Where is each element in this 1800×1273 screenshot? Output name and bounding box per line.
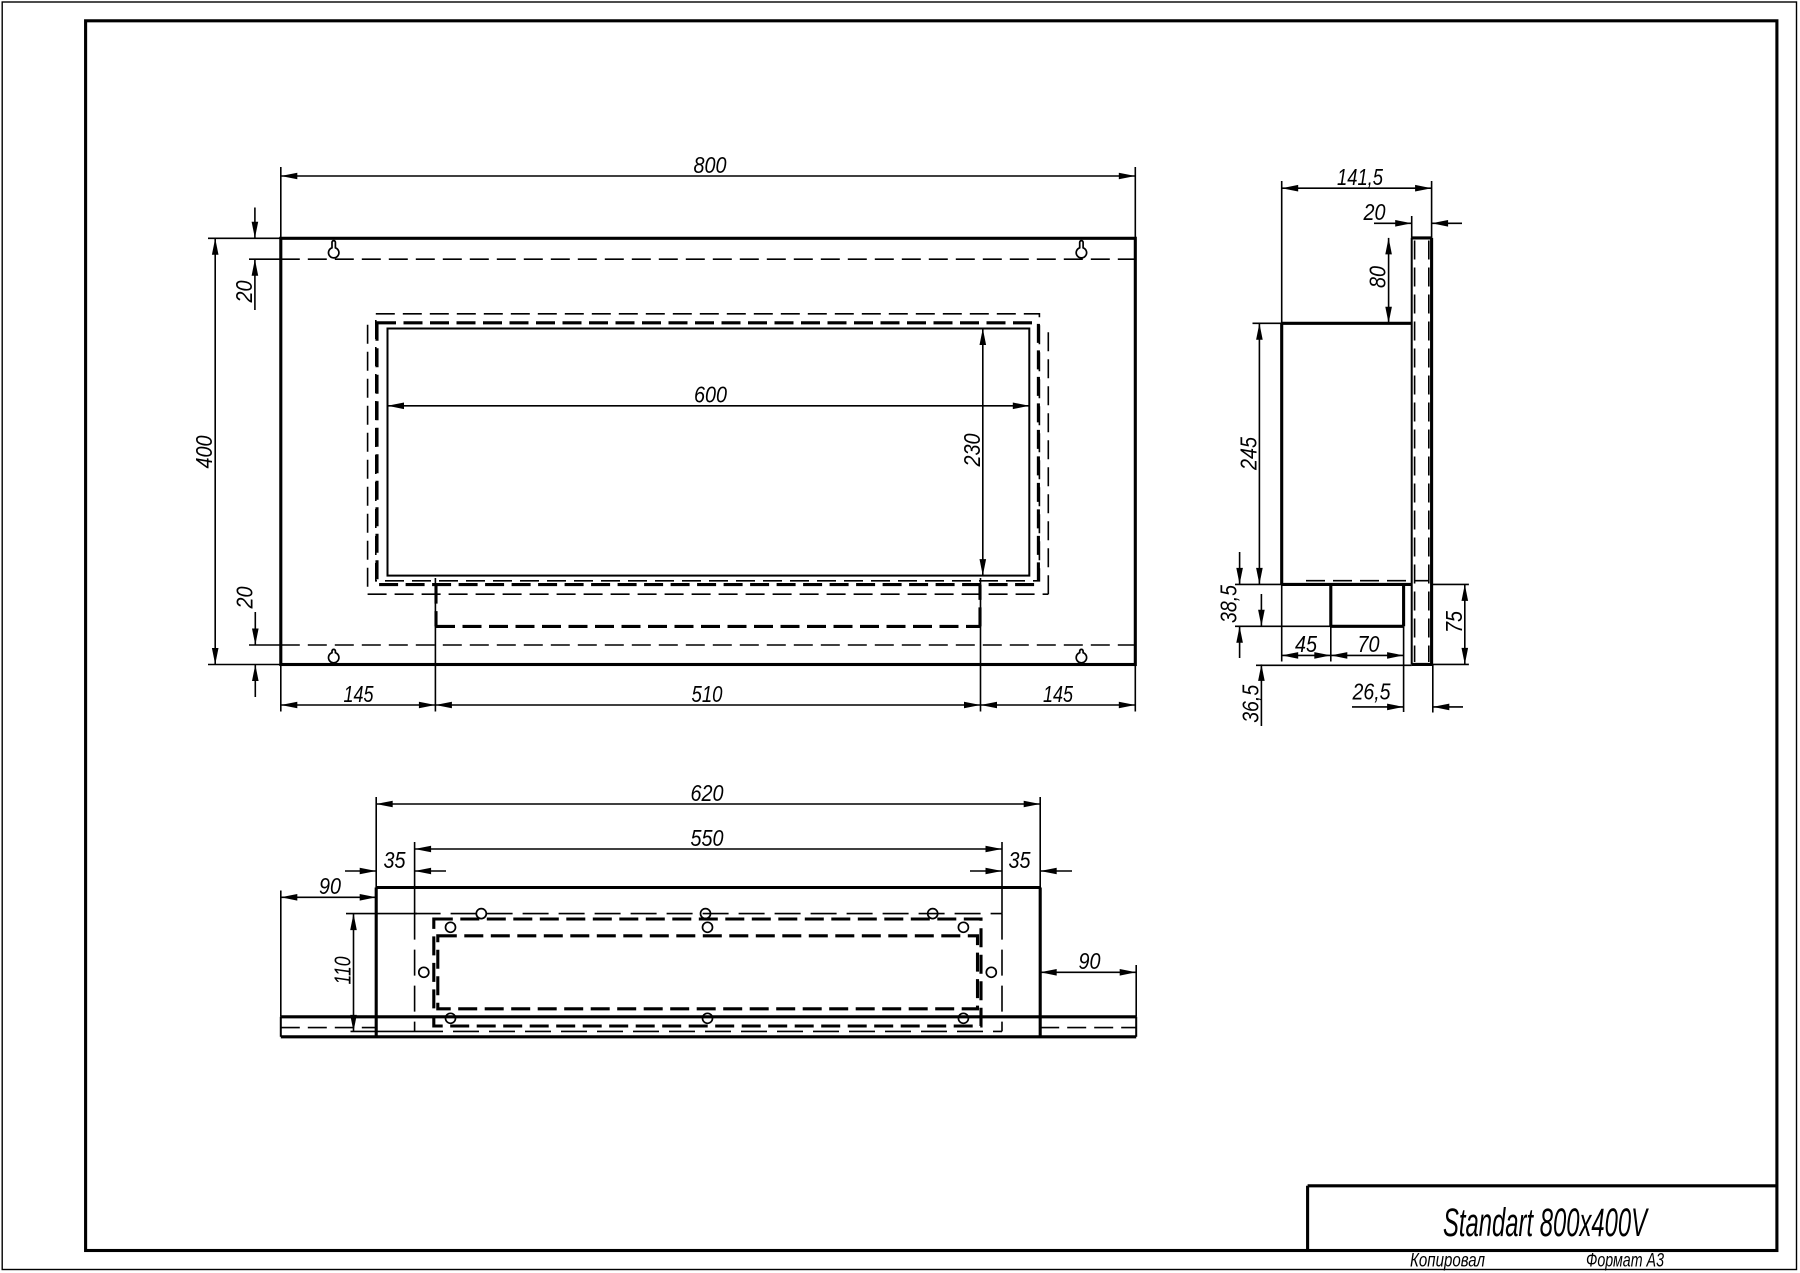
svg-text:Формат А3: Формат А3 bbox=[1586, 1250, 1664, 1272]
svg-text:141,5: 141,5 bbox=[1337, 164, 1383, 190]
svg-text:20: 20 bbox=[231, 280, 257, 303]
svg-text:45: 45 bbox=[1295, 631, 1317, 657]
svg-text:510: 510 bbox=[692, 681, 723, 707]
svg-text:600: 600 bbox=[694, 381, 727, 407]
svg-text:620: 620 bbox=[691, 780, 724, 806]
svg-text:80: 80 bbox=[1365, 266, 1391, 288]
svg-text:20: 20 bbox=[1363, 199, 1386, 225]
svg-text:230: 230 bbox=[959, 433, 985, 467]
svg-text:36,5: 36,5 bbox=[1237, 685, 1263, 723]
svg-text:20: 20 bbox=[231, 586, 257, 609]
svg-text:38,5: 38,5 bbox=[1215, 585, 1241, 623]
svg-text:Standart 800x400V: Standart 800x400V bbox=[1443, 1201, 1649, 1245]
svg-text:35: 35 bbox=[384, 847, 406, 873]
svg-text:Копировал: Копировал bbox=[1410, 1250, 1485, 1272]
svg-text:145: 145 bbox=[1043, 681, 1073, 707]
svg-text:35: 35 bbox=[1009, 847, 1031, 873]
svg-text:110: 110 bbox=[330, 956, 356, 984]
svg-text:75: 75 bbox=[1441, 611, 1467, 633]
svg-text:90: 90 bbox=[319, 873, 341, 899]
svg-text:26,5: 26,5 bbox=[1352, 679, 1391, 705]
svg-text:70: 70 bbox=[1358, 631, 1380, 657]
svg-text:245: 245 bbox=[1235, 437, 1261, 471]
svg-text:90: 90 bbox=[1079, 948, 1101, 974]
svg-text:800: 800 bbox=[694, 152, 727, 178]
svg-text:145: 145 bbox=[344, 681, 374, 707]
svg-text:550: 550 bbox=[691, 825, 724, 851]
svg-text:400: 400 bbox=[191, 435, 217, 468]
